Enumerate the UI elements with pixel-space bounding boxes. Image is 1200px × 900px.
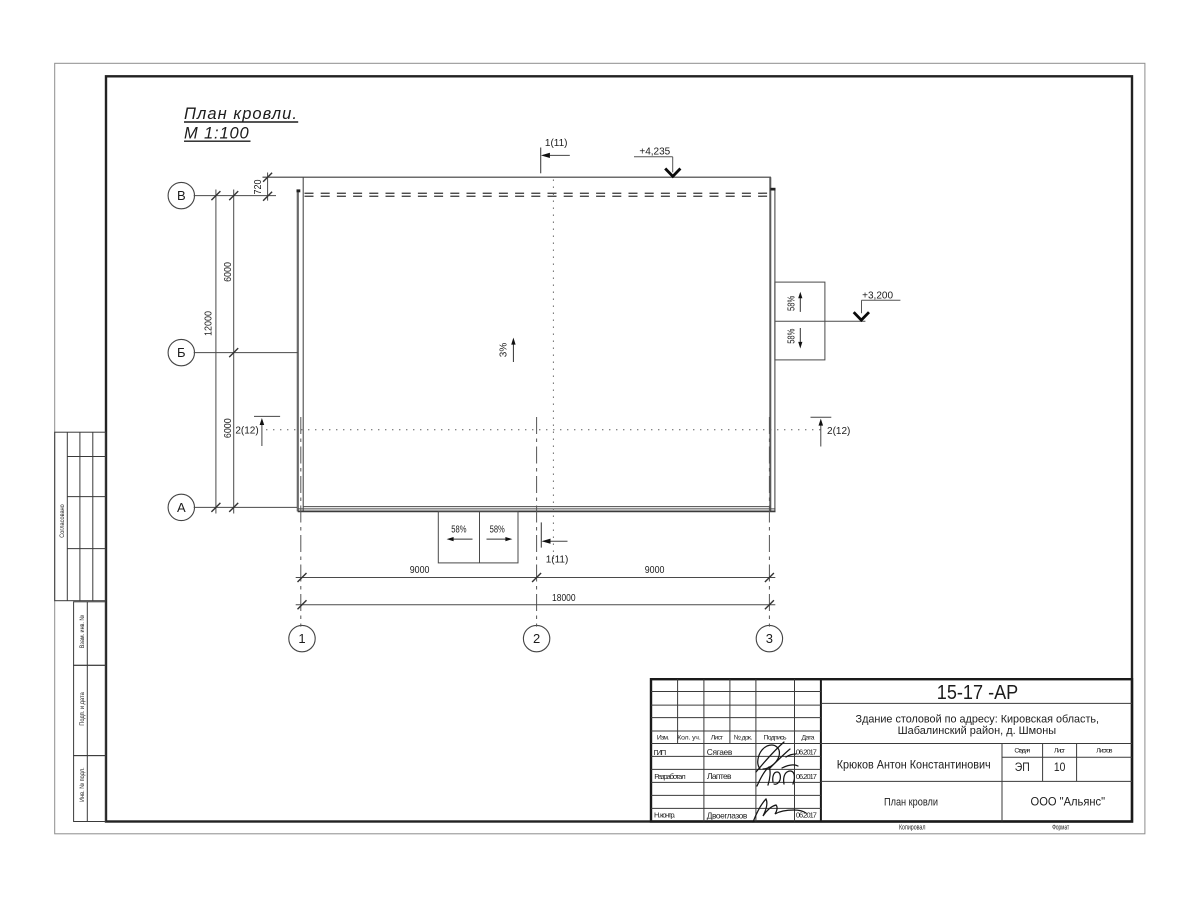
- svg-text:58%: 58%: [787, 329, 798, 344]
- svg-text:Изм.: Изм.: [657, 735, 669, 742]
- svg-text:Инв. № подл.: Инв. № подл.: [79, 767, 86, 802]
- svg-text:Н. контр.: Н. контр.: [654, 811, 676, 820]
- svg-text:В: В: [177, 188, 186, 203]
- svg-text:Здание столовой по адресу: Кир: Здание столовой по адресу: Кировская обл…: [856, 714, 1100, 726]
- svg-text:Б: Б: [177, 345, 186, 360]
- svg-text:2: 2: [533, 631, 540, 646]
- svg-text:Согласовано: Согласовано: [59, 504, 66, 538]
- svg-text:2(12): 2(12): [827, 426, 850, 437]
- svg-text:2(12): 2(12): [235, 425, 258, 436]
- svg-text:План кровли.: План кровли.: [184, 105, 298, 123]
- svg-text:ГИП: ГИП: [654, 748, 667, 757]
- svg-text:Стадия: Стадия: [1014, 748, 1030, 755]
- svg-text:1(11): 1(11): [546, 555, 569, 566]
- svg-text:10: 10: [1054, 762, 1066, 774]
- svg-text:Лист: Лист: [1054, 748, 1065, 755]
- svg-text:Шабалинский район, д. Шмоны: Шабалинский район, д. Шмоны: [898, 725, 1057, 737]
- svg-text:Подп. и дата: Подп. и дата: [79, 692, 86, 726]
- svg-text:Дата: Дата: [802, 735, 815, 742]
- svg-text:Кол. уч.: Кол. уч.: [677, 735, 701, 742]
- svg-text:18000: 18000: [552, 593, 576, 604]
- svg-text:58%: 58%: [490, 525, 505, 536]
- svg-text:Взам. инв. №: Взам. инв. №: [79, 615, 86, 649]
- svg-text:Лаптев: Лаптев: [707, 771, 732, 781]
- svg-text:1: 1: [298, 631, 305, 646]
- svg-text:План кровли: План кровли: [884, 796, 938, 808]
- svg-text:12000: 12000: [204, 311, 215, 336]
- svg-text:720: 720: [253, 179, 264, 194]
- svg-text:06.2017: 06.2017: [796, 772, 817, 781]
- svg-text:ООО "Альянс": ООО "Альянс": [1031, 796, 1106, 808]
- svg-text:9000: 9000: [410, 565, 430, 576]
- svg-text:9000: 9000: [645, 565, 665, 576]
- svg-text:М 1:100: М 1:100: [184, 124, 250, 142]
- svg-text:6000: 6000: [223, 262, 234, 282]
- svg-text:58%: 58%: [787, 296, 798, 311]
- svg-text:Листов: Листов: [1096, 748, 1113, 755]
- svg-text:Копировал: Копировал: [899, 825, 926, 832]
- svg-text:06.2017: 06.2017: [796, 811, 817, 820]
- svg-text:№ док.: № док.: [734, 735, 753, 742]
- svg-text:06.2017: 06.2017: [796, 747, 817, 756]
- svg-text:1(11): 1(11): [545, 138, 568, 149]
- svg-text:6000: 6000: [223, 418, 234, 438]
- svg-text:+3,200: +3,200: [862, 290, 893, 301]
- svg-text:3%: 3%: [499, 343, 510, 358]
- svg-text:Двоеглазов: Двоеглазов: [707, 810, 748, 820]
- svg-text:Лист: Лист: [711, 735, 724, 742]
- svg-text:58%: 58%: [451, 525, 466, 536]
- svg-text:Сягаев: Сягаев: [707, 747, 733, 757]
- svg-text:Подпись: Подпись: [764, 735, 787, 742]
- svg-text:3: 3: [766, 631, 773, 646]
- svg-text:+4,235: +4,235: [639, 147, 670, 158]
- svg-text:Крюков Антон Константинович: Крюков Антон Константинович: [837, 757, 991, 771]
- svg-text:Формат: Формат: [1052, 825, 1070, 832]
- svg-text:15-17 -АР: 15-17 -АР: [937, 682, 1019, 704]
- svg-text:А: А: [177, 500, 186, 515]
- svg-text:ЭП: ЭП: [1015, 762, 1030, 774]
- svg-text:Разработал: Разработал: [654, 772, 686, 781]
